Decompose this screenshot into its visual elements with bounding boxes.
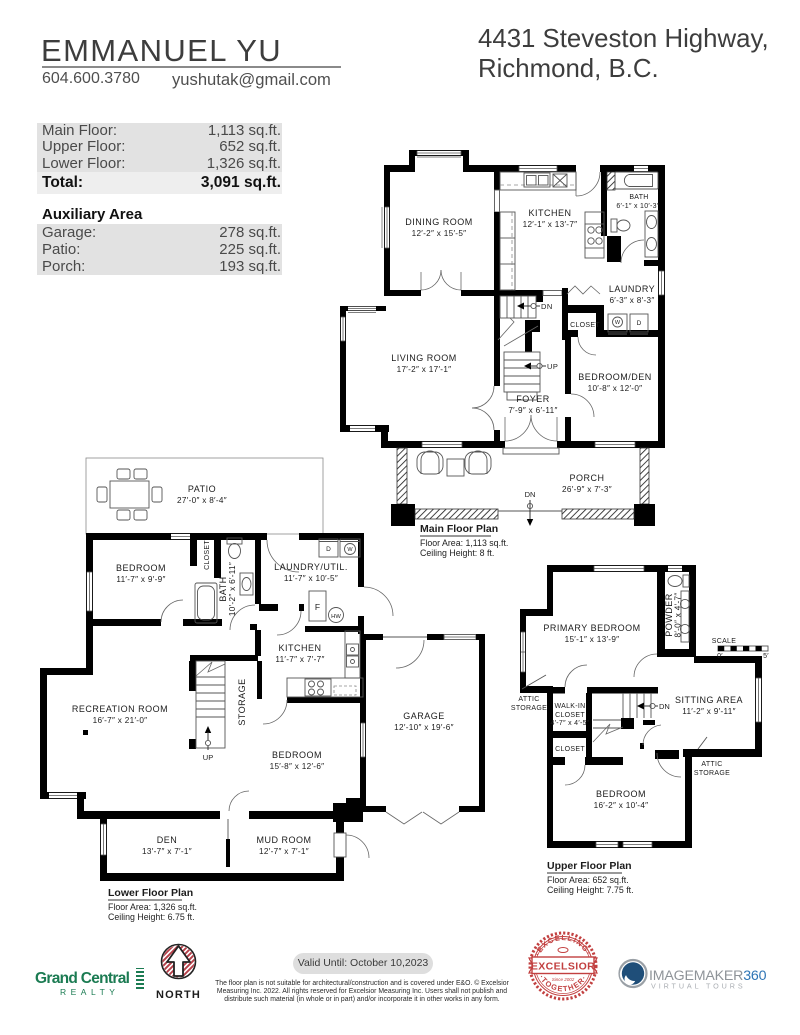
svg-text:F: F xyxy=(315,602,320,612)
svg-text:0′: 0′ xyxy=(717,653,723,660)
svg-text:PRIMARY BEDROOM: PRIMARY BEDROOM xyxy=(543,623,640,633)
svg-text:UP: UP xyxy=(547,362,558,371)
svg-text:15′-8″ x 12′-6″: 15′-8″ x 12′-6″ xyxy=(270,762,325,771)
svg-text:D: D xyxy=(326,546,331,553)
svg-text:STORAGE: STORAGE xyxy=(511,705,547,712)
svg-text:DN: DN xyxy=(525,490,536,499)
svg-text:KITCHEN: KITCHEN xyxy=(278,643,321,653)
svg-text:FOYER: FOYER xyxy=(516,394,550,404)
svg-text:STORAGE: STORAGE xyxy=(237,678,247,725)
svg-text:ATTIC: ATTIC xyxy=(518,696,539,703)
svg-text:12′-2″ x 15′-5″: 12′-2″ x 15′-5″ xyxy=(412,229,467,238)
svg-text:VIRTUAL TOURS: VIRTUAL TOURS xyxy=(651,982,746,991)
svg-text:UP: UP xyxy=(203,753,213,762)
svg-text:Main Floor Plan: Main Floor Plan xyxy=(420,523,498,535)
svg-text:CLOSET: CLOSET xyxy=(555,712,585,719)
svg-text:GARAGE: GARAGE xyxy=(403,711,445,721)
svg-text:BATH: BATH xyxy=(218,576,228,601)
svg-text:W: W xyxy=(615,320,621,326)
svg-text:7′-9″ x 6′-11″: 7′-9″ x 6′-11″ xyxy=(508,406,557,415)
svg-text:HW: HW xyxy=(331,614,341,620)
svg-text:RECREATION ROOM: RECREATION ROOM xyxy=(72,704,168,714)
svg-text:DINING ROOM: DINING ROOM xyxy=(405,217,473,227)
svg-text:PORCH: PORCH xyxy=(569,473,604,483)
svg-text:D: D xyxy=(637,320,642,327)
svg-text:ATTIC: ATTIC xyxy=(701,761,722,768)
svg-text:Floor Area: 1,326 sq.ft.: Floor Area: 1,326 sq.ft. xyxy=(108,902,197,912)
svg-text:4′-7″ x 4′-5″: 4′-7″ x 4′-5″ xyxy=(550,720,589,727)
svg-text:DN: DN xyxy=(659,702,670,711)
svg-text:SITTING AREA: SITTING AREA xyxy=(675,695,743,705)
svg-text:10′-2″ x 6′-11″: 10′-2″ x 6′-11″ xyxy=(228,562,237,616)
svg-text:Lower Floor Plan: Lower Floor Plan xyxy=(108,887,193,899)
svg-text:Ceiling Height: 7.75 ft.: Ceiling Height: 7.75 ft. xyxy=(547,885,634,895)
svg-text:LAUNDRY/UTIL.: LAUNDRY/UTIL. xyxy=(274,562,348,572)
svg-text:BEDROOM: BEDROOM xyxy=(596,789,646,799)
svg-text:11′-7″ x 7′-7″: 11′-7″ x 7′-7″ xyxy=(275,655,324,664)
svg-text:PATIO: PATIO xyxy=(188,484,216,494)
svg-text:Since 2002: Since 2002 xyxy=(552,977,575,982)
svg-text:LAUNDRY: LAUNDRY xyxy=(609,284,655,294)
svg-text:BEDROOM/DEN: BEDROOM/DEN xyxy=(578,372,652,382)
svg-text:12′-1″ x 13′-7″: 12′-1″ x 13′-7″ xyxy=(523,220,578,229)
svg-text:12′-7″ x 7′-1″: 12′-7″ x 7′-1″ xyxy=(259,847,309,856)
svg-text:5′: 5′ xyxy=(763,653,769,660)
svg-text:SCALE: SCALE xyxy=(712,638,736,645)
svg-text:10′-8″ x 12′-0″: 10′-8″ x 12′-0″ xyxy=(588,384,643,393)
svg-text:Ceiling Height: 6.75 ft.: Ceiling Height: 6.75 ft. xyxy=(108,912,195,922)
svg-text:27′-0″ x 8′-4″: 27′-0″ x 8′-4″ xyxy=(177,496,227,505)
svg-text:WALK-IN: WALK-IN xyxy=(554,703,585,710)
svg-text:11′-7″ x 9′-9″: 11′-7″ x 9′-9″ xyxy=(116,575,165,584)
svg-text:STORAGE: STORAGE xyxy=(694,770,730,777)
svg-text:15′-1″ x 13′-9″: 15′-1″ x 13′-9″ xyxy=(565,635,620,644)
svg-text:6′-1″ x 10′-3″: 6′-1″ x 10′-3″ xyxy=(616,203,660,210)
svg-text:EXCELSIOR: EXCELSIOR xyxy=(531,961,595,973)
svg-text:8′-0″ x 4′-7″: 8′-0″ x 4′-7″ xyxy=(674,592,683,637)
svg-text:BEDROOM: BEDROOM xyxy=(116,563,166,573)
svg-text:W: W xyxy=(347,547,353,553)
svg-text:16′-7″ x 21′-0″: 16′-7″ x 21′-0″ xyxy=(93,716,148,725)
svg-text:13′-7″ x 7′-1″: 13′-7″ x 7′-1″ xyxy=(142,847,192,856)
svg-text:CLOSET: CLOSET xyxy=(570,322,600,329)
svg-text:CLOSET: CLOSET xyxy=(204,540,211,570)
svg-text:11′-7″ x 10′-5″: 11′-7″ x 10′-5″ xyxy=(284,574,338,583)
svg-text:CLOSET: CLOSET xyxy=(555,746,585,753)
svg-text:Ceiling Height: 8 ft.: Ceiling Height: 8 ft. xyxy=(420,548,494,558)
svg-text:Floor Area: 1,113 sq.ft.: Floor Area: 1,113 sq.ft. xyxy=(420,538,508,548)
svg-text:POWDER: POWDER xyxy=(664,593,674,637)
svg-text:12′-10″ x 19′-6″: 12′-10″ x 19′-6″ xyxy=(394,723,454,732)
svg-text:11′-2″ x 9′-11″: 11′-2″ x 9′-11″ xyxy=(682,707,736,716)
svg-text:KITCHEN: KITCHEN xyxy=(528,208,571,218)
svg-text:MUD ROOM: MUD ROOM xyxy=(257,835,312,845)
svg-text:6′-3″ x 8′-3″: 6′-3″ x 8′-3″ xyxy=(609,296,654,305)
svg-text:BATH: BATH xyxy=(629,194,648,201)
svg-text:16′-2″ x 10′-4″: 16′-2″ x 10′-4″ xyxy=(594,801,649,810)
svg-text:26′-9″ x 7′-3″: 26′-9″ x 7′-3″ xyxy=(562,485,612,494)
svg-text:17′-2″ x 17′-1″: 17′-2″ x 17′-1″ xyxy=(397,365,452,374)
svg-text:Upper Floor Plan: Upper Floor Plan xyxy=(547,860,632,872)
svg-text:DEN: DEN xyxy=(157,835,178,845)
svg-text:NORTH: NORTH xyxy=(156,989,201,1001)
svg-text:DN: DN xyxy=(541,302,553,311)
svg-text:Floor Area: 652 sq.ft.: Floor Area: 652 sq.ft. xyxy=(547,875,629,885)
svg-text:BEDROOM: BEDROOM xyxy=(272,750,322,760)
svg-text:LIVING ROOM: LIVING ROOM xyxy=(391,353,457,363)
